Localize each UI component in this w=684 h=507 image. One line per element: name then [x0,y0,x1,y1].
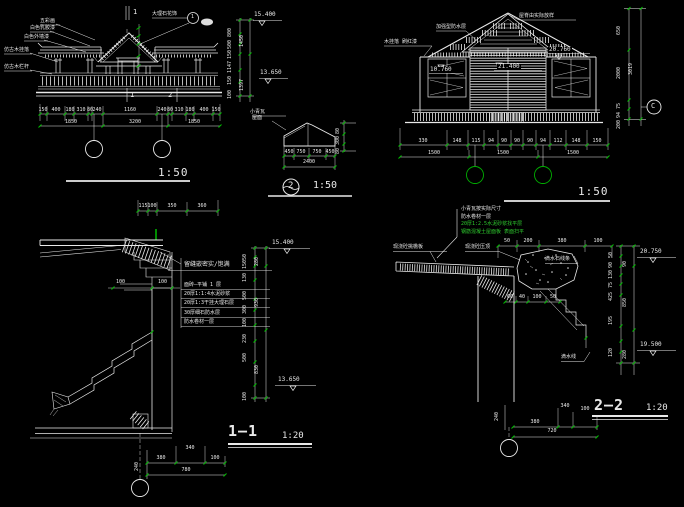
dim-label: 240 [92,108,101,113]
callout-number: 1 [191,15,194,20]
dim-label: 380 [557,239,566,244]
dim-label: 500 [243,353,248,362]
dim-label: 115 [471,139,480,144]
dim-label: 240 [495,412,500,421]
dim-label: 150 [243,260,248,269]
dim-label: 1397 [240,79,245,91]
dim-label: 800 [228,28,233,37]
dim-label: 75 [609,282,614,288]
leader-label: 白色外墙漆 [24,35,49,40]
dim-label: 180 [185,108,194,113]
note-line: 面砖—平铺 1 层 [184,283,221,288]
dim-label: 90 [514,139,520,144]
dim-label: 750 [296,150,305,155]
scale-label: 1:50 [578,186,609,197]
level-label: 13.650 [278,377,300,383]
dim-label: 500 [243,291,248,300]
dim-label: 2400 [303,160,315,165]
dim-label: 50 [550,295,556,300]
dim-label: 148 [571,139,580,144]
scale-label: 1:50 [158,167,189,178]
section-title: 2—2 [594,398,624,413]
dim-label: 1500 [428,151,440,156]
dim-label: 1500 [497,151,509,156]
dim-label: 450 [284,150,293,155]
dim-label: 100 [593,239,602,244]
dim-label: 100 [210,456,219,461]
leader-label: 滴水石线条 [545,257,570,262]
dim-label: 100 [243,318,248,327]
level-label: 21.400 [497,64,521,70]
scale-label: 1:50 [313,181,337,191]
note-line: 20厚1:1:4水泥砂浆 [184,292,230,297]
dim-label: 850 [623,298,628,307]
note-line: 小青瓦按实际尺寸 [461,207,501,212]
dim-label: 150 [592,139,601,144]
dim-label: 100 [116,280,125,285]
dim-label: 1850 [65,120,77,125]
dim-label: 150 [38,108,47,113]
dim-label: 310 [76,108,85,113]
dim-label: 40 [519,295,525,300]
dim-label: 720 [547,429,556,434]
dim-label: 80 [336,128,341,134]
dim-label: 100 [147,204,156,209]
dim-label: 90 [609,262,614,268]
dim-label: 300 [336,136,341,145]
level-label: 20.760 [548,47,572,53]
dim-label: 360 [197,204,206,209]
leader-label: 白色乳胶漆 [30,26,55,31]
dim-label: 1147 [228,61,233,73]
detail-number: 2 [288,182,293,191]
dim-label: 400 [199,108,208,113]
dim-label: 50 [504,239,510,244]
dim-label: 80 [336,148,341,154]
section-mark-label: 1 [130,92,134,99]
leader-label: 仿古木挂落 [4,48,29,53]
leader-label: 现浇砼挑檐板 [393,245,423,250]
dim-label: 148 [452,139,461,144]
dim-label: 100 [580,407,589,412]
dim-label: 94 [540,139,546,144]
cad-linework [0,0,684,507]
dim-label: 130 [609,270,614,279]
dim-label: 450 [325,150,334,155]
level-label: 13.650 [260,70,282,76]
dim-label: 195 [609,316,614,325]
callout-label: 大理石花饰 [152,12,177,17]
dim-label: 750 [312,150,321,155]
dim-label: 115 [138,204,147,209]
dim-label: 112 [553,139,562,144]
leader-label: 木挂落 刷红漆 [384,40,417,45]
section-mark-label: 2 [168,92,172,99]
dim-label: 94 [488,139,494,144]
dim-label: 1850 [188,120,200,125]
left-elevation-drawing [4,6,288,181]
dim-label: 400 [51,108,60,113]
dim-label: 50 [609,252,614,258]
note-line: 防水卷材一层 [184,320,214,325]
dim-label: 280 [623,350,628,359]
dim-label: 930 [255,298,260,307]
leader-label: 滴水线 [561,355,576,360]
dim-label: 350 [167,204,176,209]
leader-label: 屋脊由实际放样 [519,14,554,19]
leader-label: 五彩画 [40,19,55,24]
dim-label: 380 [530,420,539,425]
leader-label: 加强型防水层 [436,25,466,30]
dim-label: 380 [156,456,165,461]
dim-label: 340 [560,404,569,409]
dim-label: 200 [523,239,532,244]
note-line: 20厚1:2.5水泥砂浆找平层 [461,222,522,227]
dim-label: 60 [507,295,513,300]
dim-label: 200 [617,120,622,129]
note-line: 30厚细石防水层 [184,311,220,316]
section-title: 1—1 [228,424,258,439]
dim-label: 230 [243,334,248,343]
dim-label: 90 [501,139,507,144]
dim-label: 100 [243,392,248,401]
dim-label: 830 [255,365,260,374]
dim-label: 90 [527,139,533,144]
leader-label: 仿古木栏杆 [4,65,29,70]
level-label: 10.760 [429,67,453,73]
scale-label: 1:20 [282,432,304,441]
level-label: 15.400 [254,12,276,18]
note-line: 防水卷材一层 [461,215,491,220]
dim-label: 310 [174,108,183,113]
dim-label: 100 [532,295,541,300]
note-line: 留缝嵌密实/饱满 [184,262,230,268]
axis-label: C [651,103,655,110]
dim-label: 780 [181,468,190,473]
dim-label: 425 [609,292,614,301]
dim-label: 240 [157,108,166,113]
dim-label: 120 [609,348,614,357]
dim-label: 500 [228,40,233,49]
level-label: 15.400 [272,240,294,246]
dim-label: 150 [228,76,233,85]
dim-label: 300 [243,305,248,314]
dim-label: 280 [255,257,260,266]
dim-label: 340 [185,446,194,451]
dim-label: 1450 [240,35,245,47]
dim-label: 330 [418,139,427,144]
dim-label: 80 [167,108,173,113]
scale-label: 1:20 [646,404,668,413]
note-line: 20厚1:3干挂大理石层 [184,301,234,306]
leader-label: 屋面 [252,116,262,121]
dim-label: 150 [211,108,220,113]
dim-label: 75 [617,103,622,109]
dim-label: 94 [617,112,622,118]
dim-label: 100 [228,90,233,99]
level-label: 20.750 [640,249,662,255]
dim-label: 3200 [129,120,141,125]
dim-label: 1500 [567,151,579,156]
note-line: 钢筋混凝土屋面板 表面扫平 [461,230,524,235]
right-elevation-axis-bubbles [467,167,552,184]
dim-label: 240 [135,462,140,471]
leader-label: 现浇砼压顶 [465,245,490,250]
dim-label: 130 [243,273,248,282]
dim-label: 650 [617,26,622,35]
dim-label: 2000 [617,67,622,79]
dim-label: 3019 [629,63,634,75]
dim-label: 90 [623,261,628,267]
section-mark-label: 1 [133,9,137,16]
dim-label: 1160 [124,108,136,113]
dim-label: 100 [158,280,167,285]
level-label: 19.500 [640,342,662,348]
dim-label: 150 [228,50,233,59]
dim-label: 180 [65,108,74,113]
cad-drawing-canvas[interactable]: 五彩画 白色乳胶漆 白色外墙漆 仿古木挂落 仿古木栏杆 大理石花饰 1 1 1 … [0,0,684,507]
